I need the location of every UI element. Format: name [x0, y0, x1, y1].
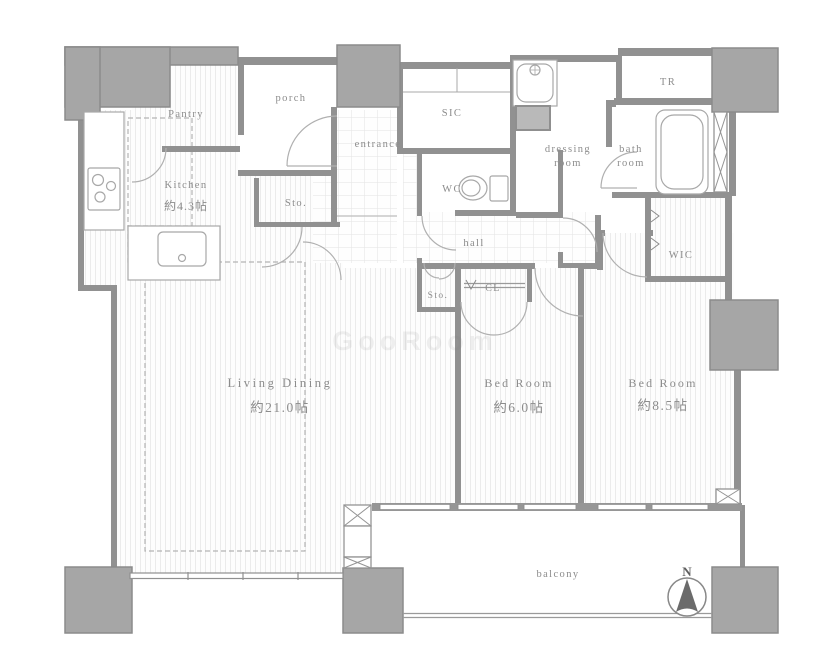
label-porch: porch — [276, 93, 307, 104]
label-balcony: balcony — [536, 569, 579, 580]
label-wic: WIC — [669, 250, 694, 261]
label-hall: hall — [463, 238, 484, 249]
entrance-floor — [337, 110, 397, 263]
compass-north-label: N — [682, 564, 692, 579]
label-living: Living Dining — [228, 376, 333, 390]
label-tr: TR — [660, 77, 676, 88]
label-storage-upper: Sto. — [285, 198, 307, 209]
pillar-top-right — [712, 48, 778, 112]
washer-pan — [516, 106, 550, 130]
pillar-porch — [337, 45, 400, 107]
label-bed6: Bed Room — [484, 376, 553, 390]
label-dressing-2: room — [554, 158, 582, 169]
label-bath-2: room — [617, 158, 645, 169]
hall-floor — [403, 212, 597, 263]
label-bed85-area: 約8.5帖 — [637, 398, 688, 413]
pillar-bottom-left — [65, 567, 132, 633]
sic-shelf — [403, 68, 510, 92]
porch-floor — [244, 65, 331, 168]
washbasin-icon — [513, 60, 557, 106]
label-living-area: 約21.0帖 — [250, 400, 310, 415]
label-bath-1: bath — [619, 144, 643, 155]
label-wc: WC — [442, 184, 462, 195]
label-storage-lower: Sto. — [428, 291, 449, 301]
label-bed6-area: 約6.0帖 — [493, 400, 544, 415]
pillar-bottom-right — [712, 567, 778, 633]
shaft-right-of-bath — [714, 112, 727, 192]
stove-icon — [88, 168, 120, 210]
label-kitchen: Kitchen — [164, 180, 207, 191]
label-dressing-1: dressing — [545, 144, 591, 155]
shaft-balcony-left — [344, 505, 371, 568]
living-south-window — [130, 572, 343, 580]
compass-icon: N — [668, 564, 706, 616]
kitchen-sink-icon — [128, 226, 220, 280]
floor-plan: GooRoom Pantry porch Kitchen 約4.3帖 SIC e… — [0, 0, 827, 670]
shaft-balcony-right — [716, 489, 740, 504]
label-closet: CL — [485, 283, 501, 294]
watermark: GooRoom — [332, 326, 497, 356]
label-pantry: Pantry — [168, 109, 204, 120]
floor-plan-drawing: GooRoom Pantry porch Kitchen 約4.3帖 SIC e… — [0, 0, 827, 670]
label-entrance: entrance — [355, 139, 402, 150]
label-bed85: Bed Room — [628, 376, 697, 390]
bathtub-icon — [656, 110, 708, 194]
pillar-bottom-middle — [343, 568, 403, 633]
balcony-railing — [403, 614, 712, 618]
label-sic: SIC — [442, 108, 463, 119]
floor-hatching — [84, 64, 734, 573]
pillar-right-middle — [710, 300, 778, 370]
label-kitchen-area: 約4.3帖 — [164, 198, 208, 213]
